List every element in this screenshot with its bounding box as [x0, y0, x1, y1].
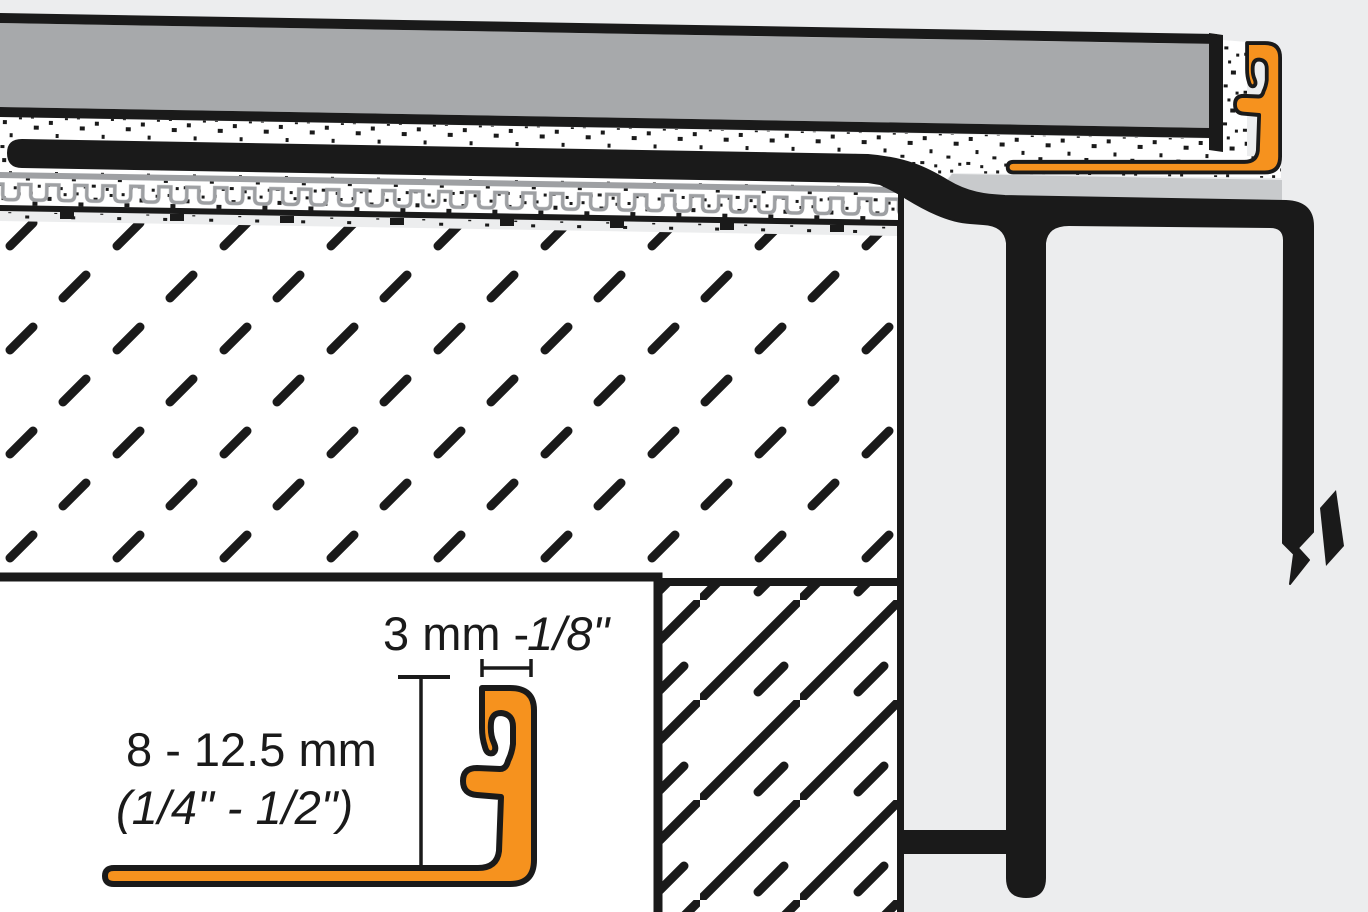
- profile-installation-diagram: 3 mm - 1/8" 8 - 12.5 mm (1/4" - 1/2"): [0, 0, 1368, 912]
- substrate-edge-line: [897, 190, 904, 912]
- width-dim-label-metric: 3 mm -: [383, 607, 529, 660]
- screed-layer: [0, 221, 898, 590]
- tile-edge-outline: [1209, 33, 1223, 152]
- concrete-substrate: [651, 578, 904, 912]
- cross-section-drawing: 3 mm - 1/8" 8 - 12.5 mm (1/4" - 1/2"): [0, 0, 1368, 912]
- width-dim-label-imperial: 1/8": [527, 607, 611, 660]
- frame-bottom-bracket: [898, 830, 1010, 854]
- height-dim-label-metric: 8 - 12.5 mm: [126, 723, 377, 776]
- detail-inset: 3 mm - 1/8" 8 - 12.5 mm (1/4" - 1/2"): [0, 577, 658, 912]
- height-dim-label-imperial: (1/4" - 1/2"): [116, 781, 353, 834]
